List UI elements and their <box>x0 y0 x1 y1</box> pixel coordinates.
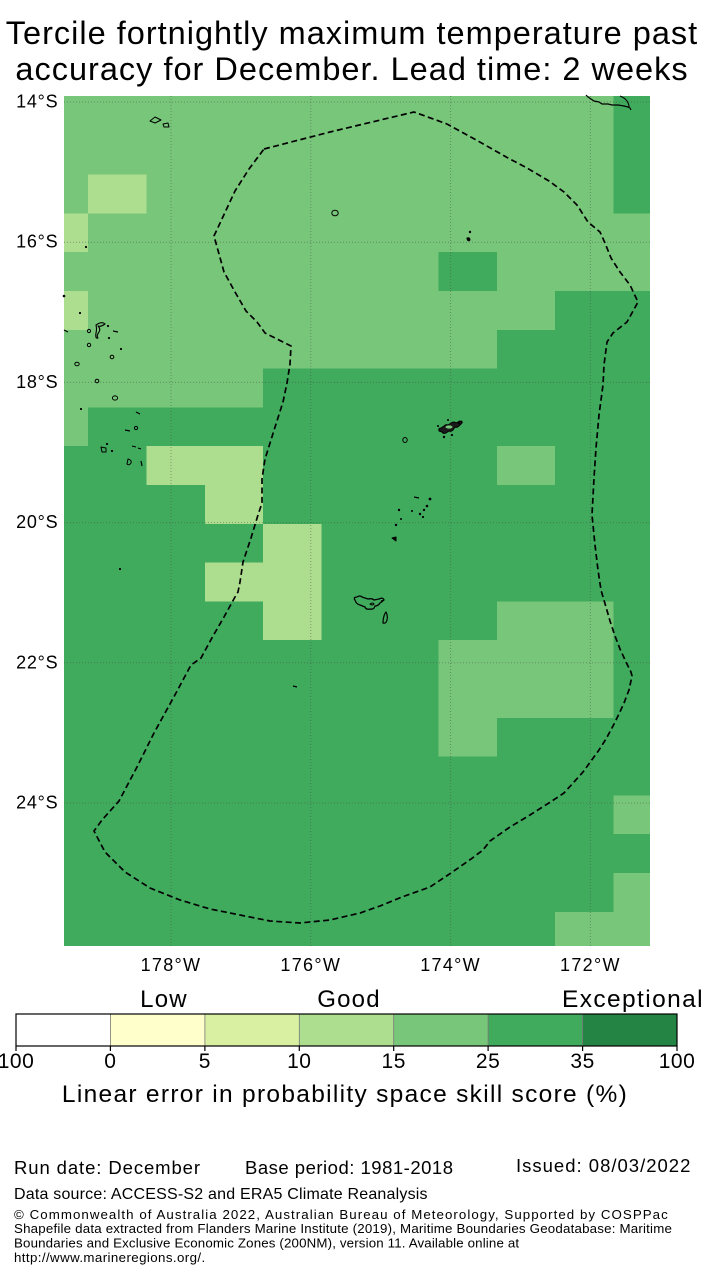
svg-text:Low: Low <box>140 986 188 1013</box>
svg-text:Good: Good <box>317 986 381 1013</box>
svg-text:Linear error in probability sp: Linear error in probability space skill … <box>62 1081 628 1108</box>
svg-text:24°S: 24°S <box>16 793 58 813</box>
svg-text:http://www.marineregions.org/.: http://www.marineregions.org/. <box>14 1250 206 1265</box>
svg-text:Base period: 1981-2018: Base period: 1981-2018 <box>245 1157 453 1178</box>
svg-text:Tercile fortnightly maximum te: Tercile fortnightly maximum temperature … <box>6 15 698 51</box>
svg-text:176°W: 176°W <box>280 955 341 975</box>
svg-text:0: 0 <box>104 1050 116 1073</box>
svg-text:18°S: 18°S <box>16 372 58 392</box>
svg-text:35: 35 <box>570 1050 594 1073</box>
svg-text:© Commonwealth of Australia 20: © Commonwealth of Australia 2022, Austra… <box>14 1207 669 1222</box>
svg-text:14°S: 14°S <box>16 92 58 112</box>
svg-text:Shapefile data extracted from: Shapefile data extracted from Flanders M… <box>14 1221 672 1236</box>
svg-text:Boundaries and Exclusive Econo: Boundaries and Exclusive Economic Zones … <box>14 1236 519 1251</box>
svg-text:172°W: 172°W <box>560 955 621 975</box>
svg-text:accuracy for December. Lead ti: accuracy for December. Lead time: 2 week… <box>15 51 688 87</box>
svg-text:20°S: 20°S <box>16 512 58 532</box>
svg-text:Data source: ACCESS-S2 and ERA: Data source: ACCESS-S2 and ERA5 Climate … <box>14 1186 428 1203</box>
svg-text:16°S: 16°S <box>16 232 58 252</box>
svg-text:Exceptional: Exceptional <box>562 986 704 1013</box>
svg-text:Issued: 08/03/2022: Issued: 08/03/2022 <box>516 1155 691 1176</box>
svg-text:100: 100 <box>659 1050 696 1073</box>
svg-text:25: 25 <box>476 1050 500 1073</box>
svg-text:Run date: December: Run date: December <box>14 1157 201 1178</box>
svg-text:174°W: 174°W <box>420 955 481 975</box>
svg-text:5: 5 <box>199 1050 211 1073</box>
svg-text:15: 15 <box>382 1050 406 1073</box>
svg-text:10: 10 <box>287 1050 311 1073</box>
svg-text:22°S: 22°S <box>16 652 58 672</box>
svg-text:100: 100 <box>0 1050 34 1073</box>
svg-text:178°W: 178°W <box>141 955 202 975</box>
